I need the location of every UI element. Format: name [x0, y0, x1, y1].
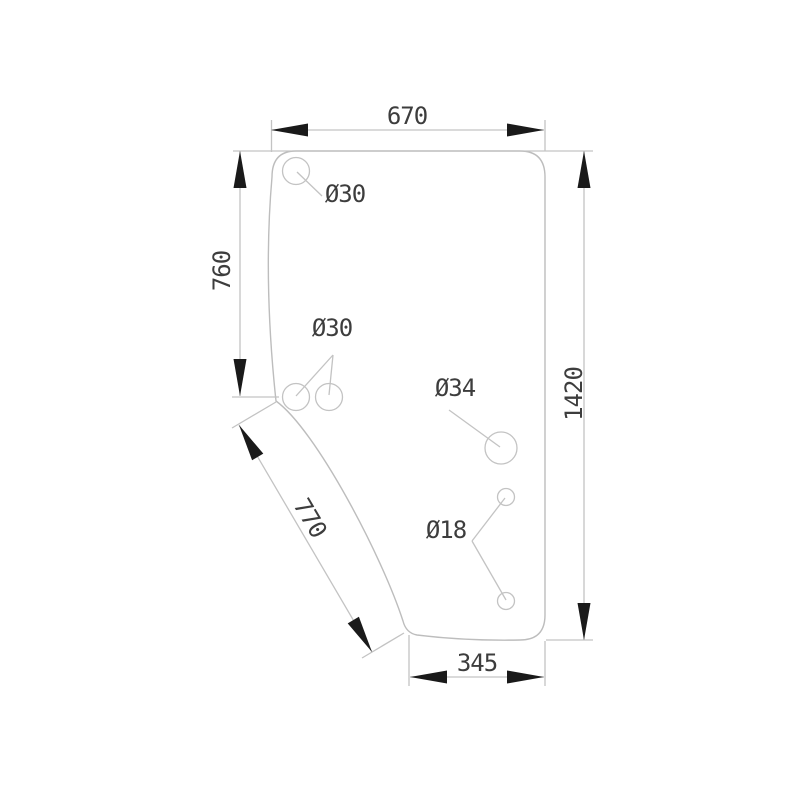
leader-mid-pair-2 — [329, 355, 333, 395]
arrowhead-770-top — [239, 425, 263, 460]
dim-text-670: 670 — [387, 102, 427, 130]
arrowhead-1420-bottom — [578, 603, 591, 640]
arrowhead-670-left — [271, 124, 308, 137]
hole-circle-small-lower — [498, 593, 515, 610]
arrowhead-670-right — [507, 124, 544, 137]
hole-circle-mid-left-2 — [316, 384, 343, 411]
glass-panel-drawing: 670 760 1420 770 345 Ø30 Ø30 Ø34 Ø18 — [0, 0, 800, 800]
hole-circle-small-upper — [498, 489, 515, 506]
arrowhead-760-top — [234, 151, 247, 188]
arrowhead-1420-top — [578, 151, 591, 188]
dim-text-1420: 1420 — [560, 367, 588, 421]
dim-text-760: 760 — [208, 251, 236, 291]
leader-small-lower — [472, 541, 506, 600]
leader-mid-pair-1 — [296, 355, 333, 396]
hole-label-small-pair: Ø18 — [426, 516, 466, 544]
dim-text-345: 345 — [457, 649, 497, 677]
hole-label-top-left: Ø30 — [325, 180, 365, 208]
ext-line-770-top — [232, 402, 276, 428]
arrowhead-345-left — [410, 671, 447, 684]
dim-line-770 — [239, 425, 372, 652]
dim-text-770: 770 — [288, 493, 333, 542]
hole-label-center: Ø34 — [435, 374, 476, 402]
leader-small-upper — [472, 498, 505, 541]
arrowhead-760-bottom — [234, 359, 247, 396]
hole-circle-mid-left-1 — [283, 384, 310, 411]
hole-circle-center — [485, 432, 517, 464]
arrowhead-770-bottom — [348, 617, 372, 652]
leader-hole-center — [449, 410, 500, 447]
arrowhead-345-right — [507, 671, 544, 684]
technical-drawing-canvas: 670 760 1420 770 345 Ø30 Ø30 Ø34 Ø18 — [0, 0, 800, 800]
hole-label-mid-pair: Ø30 — [312, 314, 352, 342]
